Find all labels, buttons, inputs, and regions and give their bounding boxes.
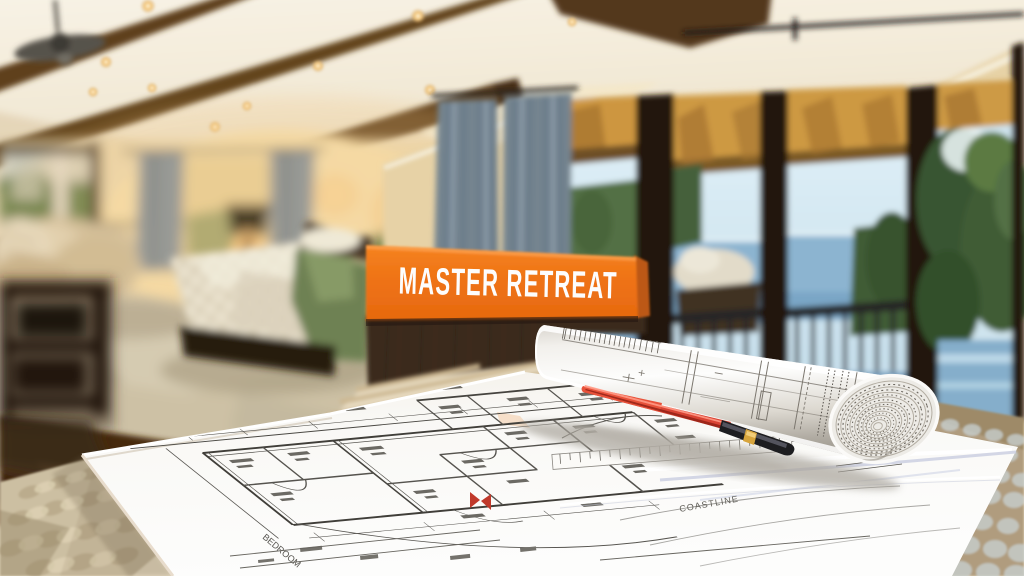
svg-text:MASTER RETREAT: MASTER RETREAT <box>398 261 618 308</box>
